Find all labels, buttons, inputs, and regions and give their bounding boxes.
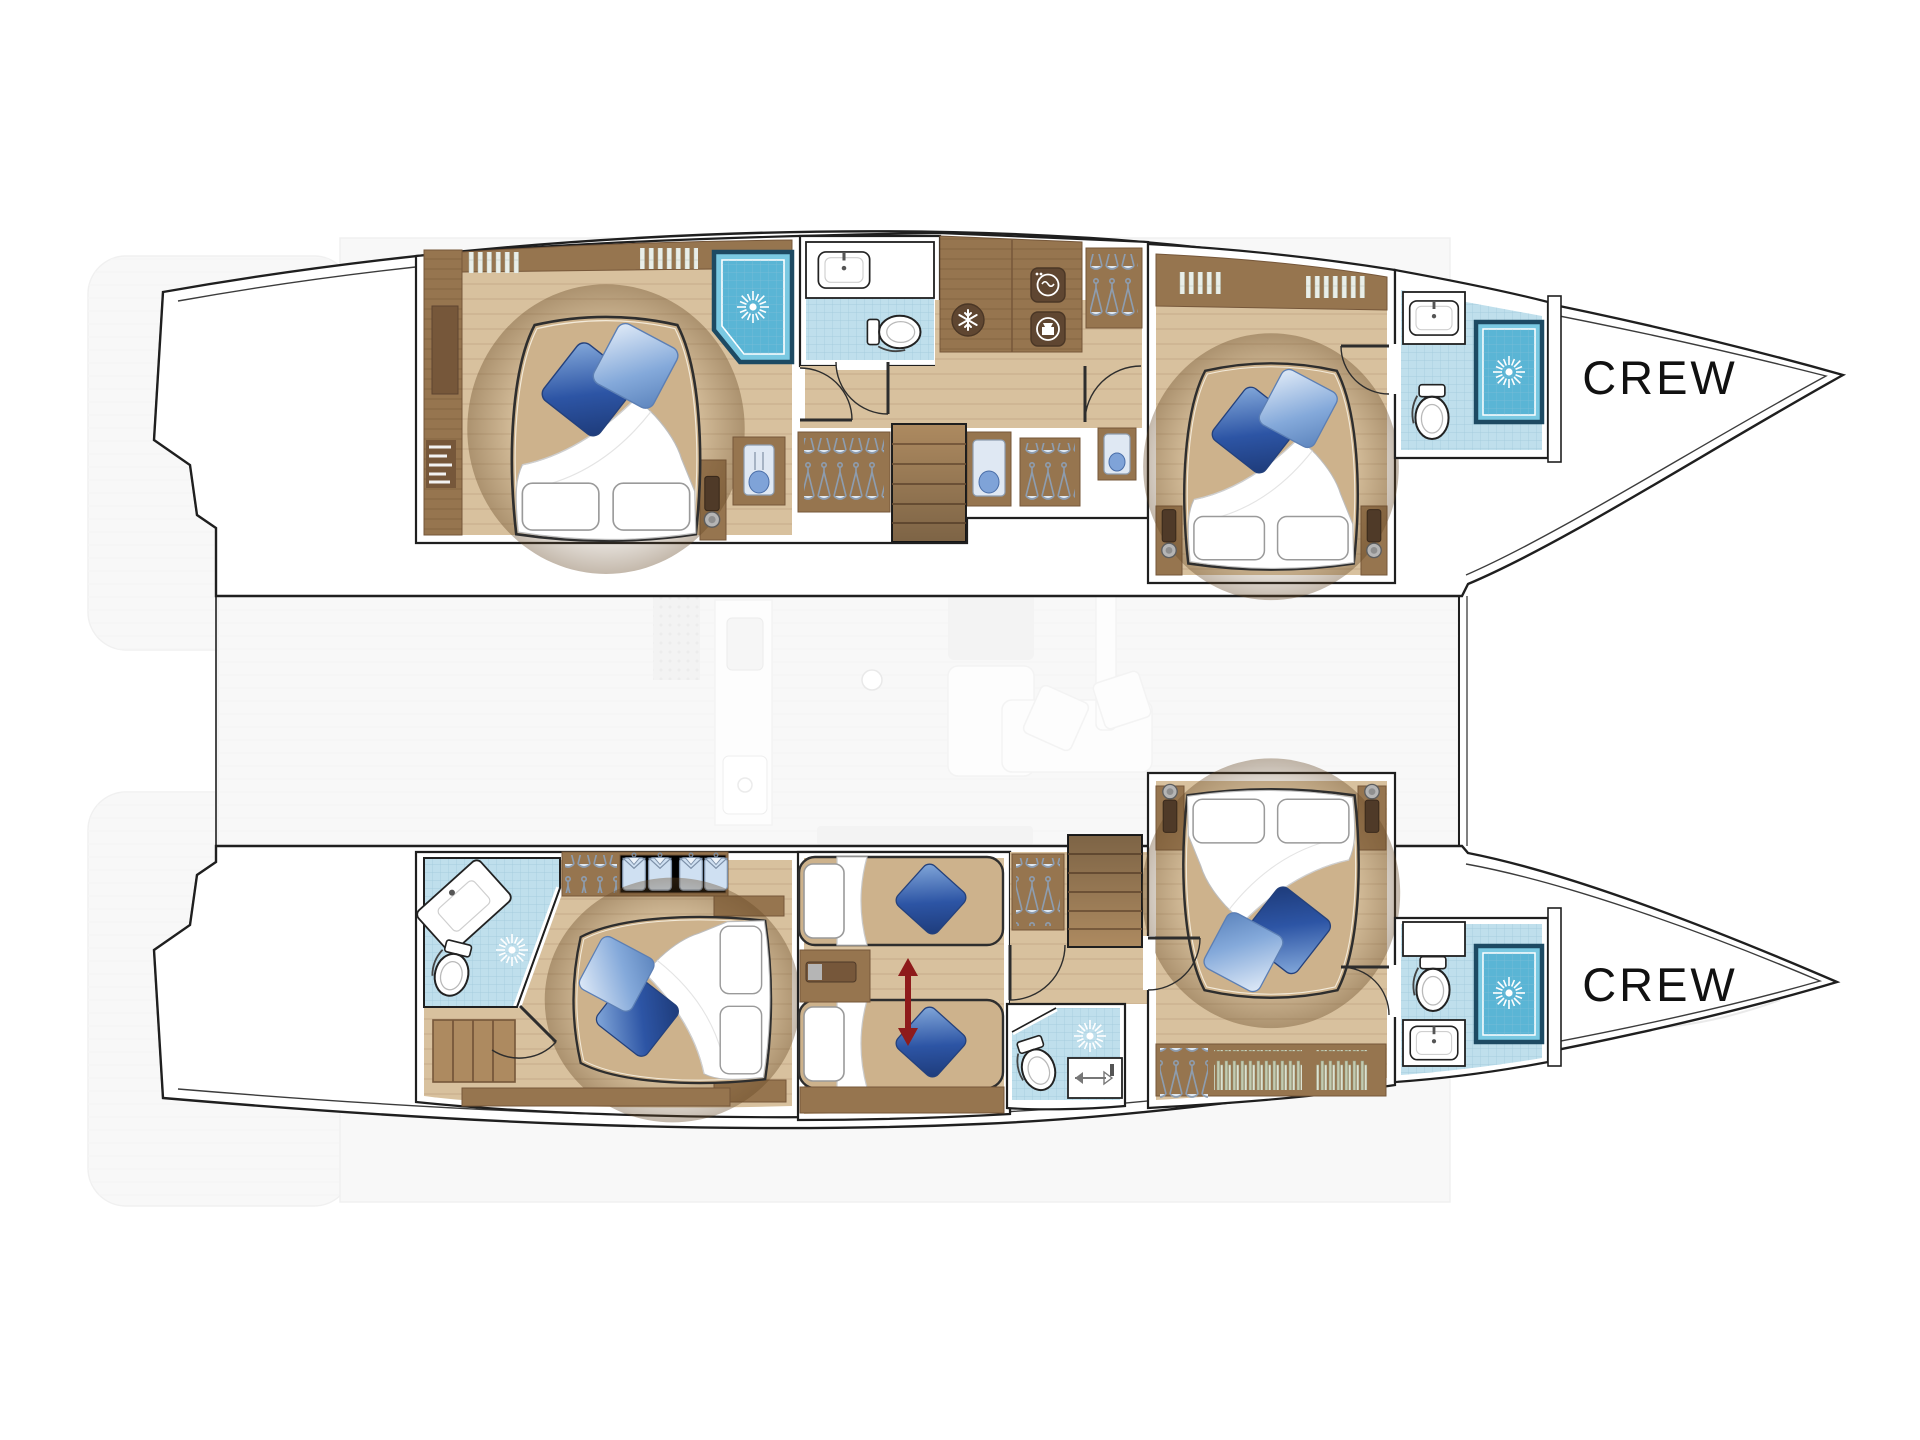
upper-aft-double-cabin bbox=[424, 240, 792, 574]
hanging-locker bbox=[1012, 854, 1064, 930]
hanging-locker bbox=[1086, 248, 1142, 328]
shower-cabin bbox=[1476, 322, 1542, 422]
crew-bulkhead-top bbox=[1548, 296, 1561, 462]
upper-hull bbox=[154, 231, 1843, 600]
faded-tv-console bbox=[817, 826, 1033, 846]
midship-shower-room bbox=[1007, 1004, 1125, 1109]
upper-forward-head bbox=[1395, 270, 1548, 458]
corner-shower bbox=[714, 252, 792, 362]
window-blind bbox=[1176, 272, 1224, 294]
counter bbox=[1403, 922, 1465, 956]
step-ladder bbox=[433, 1020, 515, 1082]
shower-cabin bbox=[1476, 946, 1542, 1042]
faded-table bbox=[862, 670, 882, 690]
bookshelf-and-locker bbox=[1156, 1044, 1386, 1098]
linen-shelf bbox=[426, 440, 456, 488]
staircase-lower-hull bbox=[1068, 835, 1142, 947]
bridgedeck-forward-edge bbox=[1459, 596, 1467, 846]
window-blind bbox=[1306, 276, 1366, 298]
crew-bulkhead-bottom bbox=[1548, 908, 1561, 1066]
window-blind bbox=[640, 248, 698, 269]
staircase-upper-hull bbox=[892, 424, 966, 542]
twin-convertible-cabin bbox=[798, 852, 1010, 1120]
decor-niche bbox=[733, 437, 785, 505]
crew-label-top: CREW bbox=[1582, 351, 1738, 404]
cabinet-door bbox=[432, 306, 458, 394]
under-bed-drawer bbox=[462, 1088, 730, 1106]
deck-plan-page: CREW CREW bbox=[0, 0, 1920, 1440]
crew-label-bottom: CREW bbox=[1582, 958, 1738, 1011]
lower-forward-double-cabin bbox=[1142, 758, 1400, 1108]
slide-out-tray bbox=[1068, 1058, 1122, 1098]
window-blind bbox=[468, 252, 520, 273]
catamaran-deck-plan: CREW CREW bbox=[0, 0, 1920, 1440]
under-bed-drawer bbox=[800, 1087, 1004, 1113]
upper-midship-double-cabin bbox=[1143, 244, 1399, 600]
upper-aft-head bbox=[800, 236, 940, 366]
